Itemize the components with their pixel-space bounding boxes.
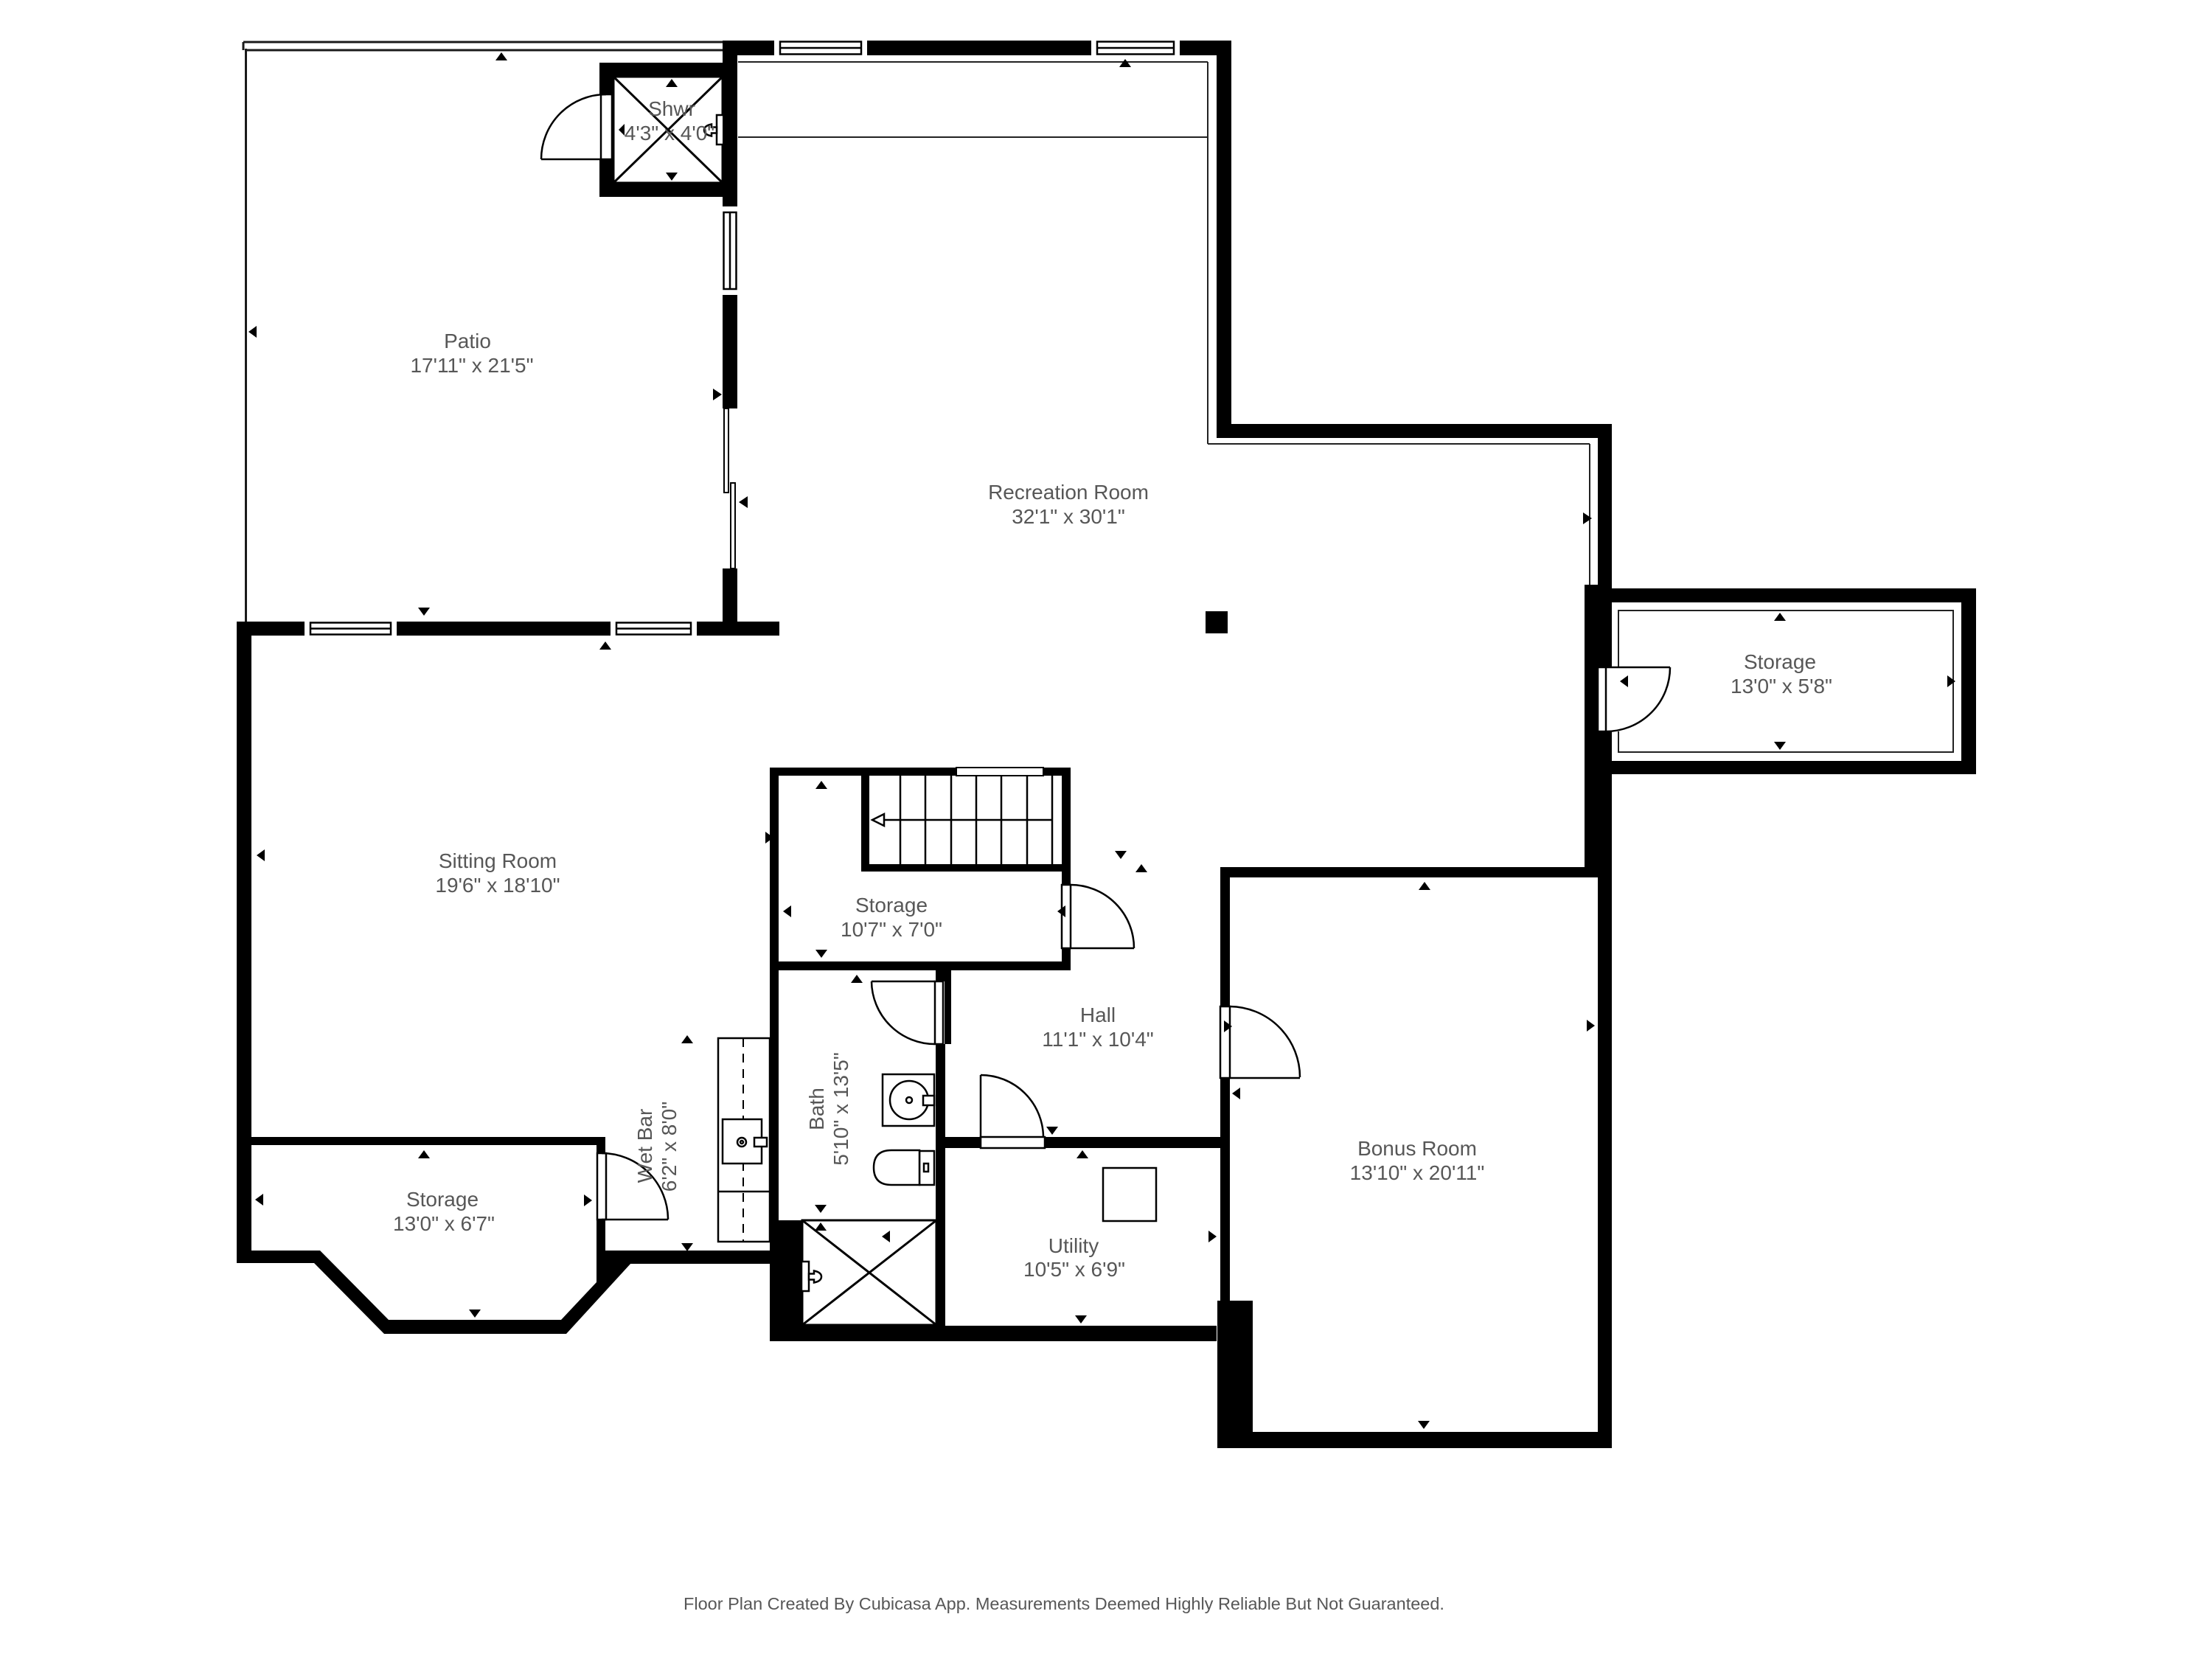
svg-text:Sitting Room: Sitting Room [439,849,557,872]
svg-text:4'3" x 4'0": 4'3" x 4'0" [625,122,714,145]
svg-text:13'10" x 20'11": 13'10" x 20'11" [1350,1161,1485,1184]
svg-text:Patio: Patio [444,330,491,352]
svg-text:Wet Bar: Wet Bar [633,1109,656,1183]
svg-text:6'2" x 8'0": 6'2" x 8'0" [658,1102,681,1192]
svg-text:13'0" x 6'7": 13'0" x 6'7" [393,1212,495,1235]
svg-text:5'10" x 13'5": 5'10" x 13'5" [829,1052,852,1166]
svg-text:Storage: Storage [855,894,928,917]
svg-text:Utility: Utility [1048,1234,1099,1257]
svg-text:32'1" x 30'1": 32'1" x 30'1" [1012,505,1125,528]
svg-text:17'11" x 21'5": 17'11" x 21'5" [410,354,533,377]
svg-text:Bonus Room: Bonus Room [1357,1137,1477,1160]
svg-text:Shwr: Shwr [648,97,695,120]
svg-text:Recreation Room: Recreation Room [988,481,1149,504]
svg-text:Floor Plan Created By Cubicasa: Floor Plan Created By Cubicasa App. Meas… [684,1594,1444,1613]
svg-text:Storage: Storage [1744,650,1816,673]
svg-text:11'1" x 10'4": 11'1" x 10'4" [1042,1028,1153,1051]
svg-text:Hall: Hall [1080,1004,1116,1026]
svg-text:10'5" x 6'9": 10'5" x 6'9" [1023,1258,1125,1281]
svg-text:Bath: Bath [805,1088,828,1130]
svg-text:13'0" x 5'8": 13'0" x 5'8" [1731,675,1832,698]
svg-text:10'7" x 7'0": 10'7" x 7'0" [841,918,942,941]
svg-text:19'6" x 18'10": 19'6" x 18'10" [435,874,560,897]
svg-text:Storage: Storage [406,1188,479,1211]
